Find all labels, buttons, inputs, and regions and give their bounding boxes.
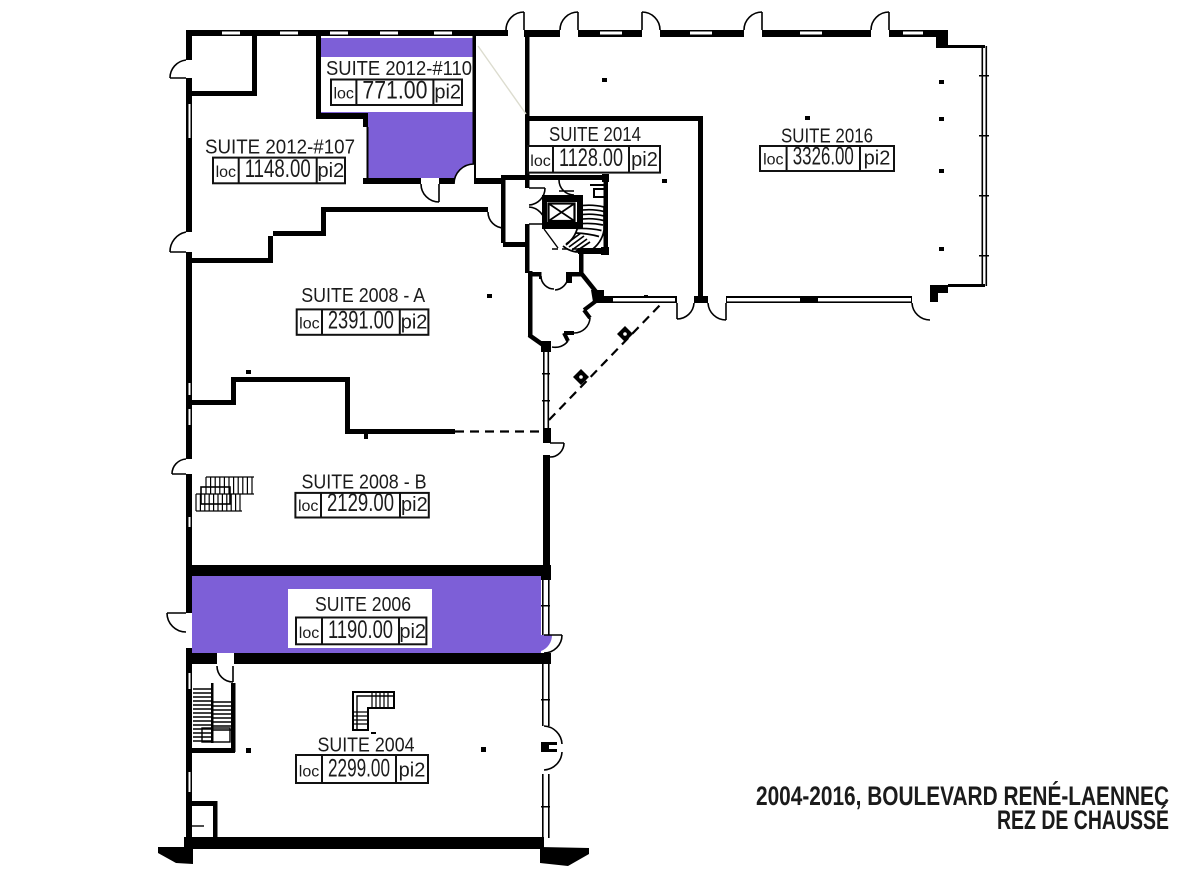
svg-text:loc: loc bbox=[299, 625, 319, 642]
svg-text:pi2: pi2 bbox=[864, 148, 891, 170]
svg-text:SUITE 2004: SUITE 2004 bbox=[318, 735, 415, 757]
svg-text:3326.00: 3326.00 bbox=[793, 143, 854, 171]
svg-text:loc: loc bbox=[530, 153, 550, 170]
svg-text:pi2: pi2 bbox=[434, 82, 461, 104]
svg-text:loc: loc bbox=[216, 164, 236, 181]
svg-text:2391.00: 2391.00 bbox=[328, 306, 394, 334]
svg-text:pi2: pi2 bbox=[318, 160, 345, 182]
svg-text:1148.00: 1148.00 bbox=[245, 155, 311, 183]
svg-text:771.00: 771.00 bbox=[362, 77, 427, 105]
svg-text:pi2: pi2 bbox=[399, 621, 426, 643]
svg-text:loc: loc bbox=[298, 498, 318, 515]
svg-text:1190.00: 1190.00 bbox=[328, 616, 393, 644]
svg-text:2299.00: 2299.00 bbox=[328, 755, 390, 783]
svg-text:loc: loc bbox=[763, 152, 783, 169]
svg-text:pi2: pi2 bbox=[399, 760, 426, 782]
svg-text:loc: loc bbox=[333, 86, 353, 103]
svg-text:pi2: pi2 bbox=[401, 311, 428, 333]
svg-text:pi2: pi2 bbox=[401, 494, 428, 516]
svg-text:1128.00: 1128.00 bbox=[559, 144, 623, 172]
svg-text:SUITE 2008 - A: SUITE 2008 - A bbox=[301, 285, 426, 307]
svg-text:REZ DE CHAUSSÉ: REZ DE CHAUSSÉ bbox=[997, 805, 1169, 835]
svg-text:SUITE 2006: SUITE 2006 bbox=[315, 594, 411, 616]
svg-text:SUITE 2014: SUITE 2014 bbox=[549, 124, 641, 146]
svg-text:pi2: pi2 bbox=[631, 149, 658, 171]
svg-text:loc: loc bbox=[299, 315, 319, 332]
svg-text:loc: loc bbox=[299, 764, 319, 781]
svg-text:2129.00: 2129.00 bbox=[327, 489, 394, 517]
